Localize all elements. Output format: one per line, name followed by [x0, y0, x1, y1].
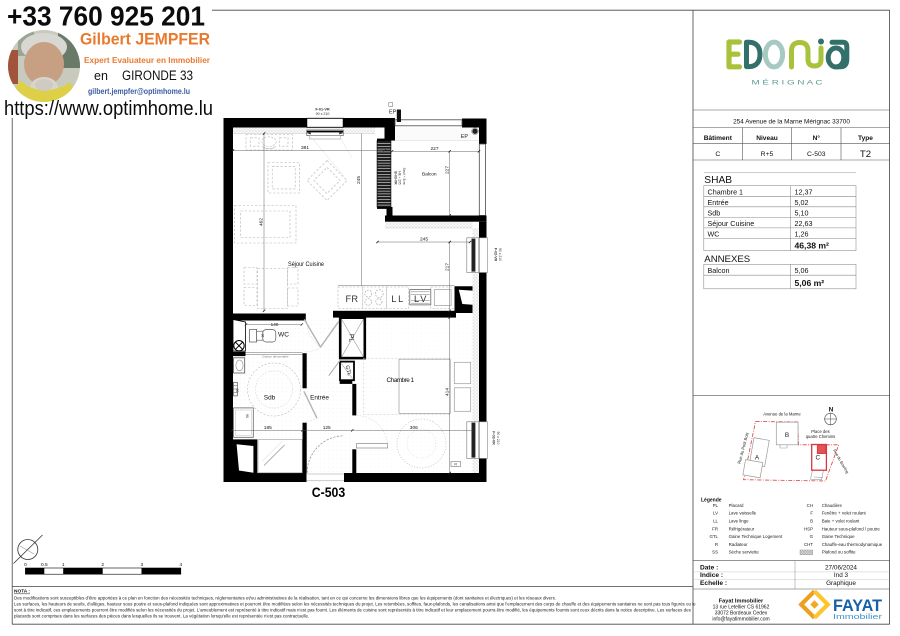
svg-text:F: F: [810, 511, 813, 516]
svg-text:quatre Chemins: quatre Chemins: [806, 434, 836, 439]
svg-text:Sdb: Sdb: [264, 395, 276, 402]
svg-text:1: 1: [62, 562, 65, 568]
svg-text:Séjour Cuisine: Séjour Cuisine: [708, 219, 755, 228]
svg-text:Echelle :: Echelle :: [700, 580, 727, 587]
svg-text:Type: Type: [858, 135, 873, 142]
svg-text:ANNEXES: ANNEXES: [704, 254, 750, 265]
svg-text:WC: WC: [278, 332, 289, 339]
svg-text:90 x 210: 90 x 210: [496, 431, 500, 444]
svg-text:R+5: R+5: [761, 151, 774, 158]
svg-text:M É R I G N A C: M É R I G N A C: [752, 80, 824, 87]
svg-text:en: en: [94, 69, 108, 83]
svg-text:5,02: 5,02: [795, 198, 809, 207]
svg-text:PL: PL: [713, 503, 719, 508]
svg-text:placards sont comprises dans l: placards sont comprises dans les surface…: [14, 613, 309, 618]
svg-text:B: B: [810, 519, 813, 524]
svg-text:Hauteur sous-plafond / poutre: Hauteur sous-plafond / poutre: [822, 526, 881, 531]
svg-text:5,06: 5,06: [795, 266, 809, 275]
svg-text:90 x 210: 90 x 210: [316, 112, 330, 116]
svg-text:CHT: CHT: [804, 542, 813, 547]
svg-text:NOTA :: NOTA :: [14, 589, 30, 595]
svg-text:3: 3: [140, 562, 143, 568]
svg-text:Fenêtre + volet roulant: Fenêtre + volet roulant: [822, 511, 867, 516]
svg-text:Avenue de la Marne: Avenue de la Marne: [763, 411, 801, 416]
svg-text:46,38 m²: 46,38 m²: [795, 240, 830, 250]
svg-text:Cloison démontable: Cloison démontable: [262, 355, 289, 359]
svg-text:C: C: [715, 151, 720, 158]
svg-text:2: 2: [101, 562, 104, 568]
svg-text:414: 414: [444, 388, 450, 396]
svg-text:CH: CH: [807, 503, 813, 508]
svg-text:245: 245: [356, 176, 362, 184]
svg-text:0: 0: [24, 562, 27, 568]
svg-text:462: 462: [259, 218, 265, 226]
svg-text:12,37: 12,37: [795, 187, 813, 196]
svg-text:Gilbert JEMPFER: Gilbert JEMPFER: [80, 30, 210, 48]
svg-text:+33 760 925 201: +33 760 925 201: [7, 1, 205, 32]
svg-text:5,10: 5,10: [795, 208, 809, 217]
svg-text:T2: T2: [860, 149, 871, 160]
svg-text:FR: FR: [712, 526, 718, 531]
svg-text:GIRONDE 33: GIRONDE 33: [122, 68, 193, 83]
svg-text:LV: LV: [713, 511, 718, 516]
svg-text:https://www.optimhome.lu: https://www.optimhome.lu: [4, 98, 213, 120]
svg-text:27/06/2024: 27/06/2024: [825, 564, 857, 571]
svg-text:Expert Evaluateur en Immobilie: Expert Evaluateur en Immobilier: [84, 55, 211, 65]
svg-text:Gaine Technique Logement: Gaine Technique Logement: [729, 534, 783, 539]
svg-text:Gaine Technique: Gaine Technique: [822, 534, 855, 539]
svg-text:Niveau: Niveau: [756, 135, 778, 142]
svg-text:Baie + volet roulant: Baie + volet roulant: [822, 519, 860, 524]
svg-text:Légende: Légende: [701, 497, 722, 503]
svg-text:LL: LL: [391, 294, 403, 304]
svg-text:PL: PL: [348, 334, 355, 342]
svg-text:245: 245: [420, 237, 428, 243]
svg-text:Entrée: Entrée: [708, 198, 729, 207]
svg-text:0.5: 0.5: [41, 562, 48, 568]
svg-text:86: 86: [261, 334, 265, 338]
svg-text:Radiateur: Radiateur: [729, 542, 749, 547]
svg-text:F-02-VR: F-02-VR: [494, 248, 498, 262]
svg-text:LV: LV: [414, 294, 427, 304]
svg-text:Sdb: Sdb: [708, 208, 721, 217]
svg-text:Date :: Date :: [700, 565, 718, 572]
svg-text:Des modifications sont suscept: Des modifications sont susceptibles d'êt…: [14, 595, 556, 600]
svg-text:Bâtiment: Bâtiment: [704, 135, 733, 142]
svg-text:R: R: [454, 463, 457, 467]
svg-text:185: 185: [264, 425, 272, 431]
svg-text:WC: WC: [708, 229, 720, 238]
svg-text:Fayat Immobilier: Fayat Immobilier: [719, 598, 764, 604]
svg-text:Chambre 1: Chambre 1: [708, 187, 744, 196]
svg-text:90: 90: [235, 389, 239, 393]
svg-text:N°: N°: [813, 134, 821, 142]
svg-text:C: C: [815, 455, 820, 462]
svg-text:Lave linge: Lave linge: [729, 519, 750, 524]
svg-text:Plafond ou soffite: Plafond ou soffite: [822, 550, 856, 555]
svg-text:306: 306: [410, 425, 418, 431]
svg-text:HE + 205: HE + 205: [398, 171, 402, 185]
svg-text:Immobilier: Immobilier: [833, 612, 883, 621]
svg-text:FR: FR: [346, 294, 359, 304]
svg-text:Les surfaces, les hauteurs de: Les surfaces, les hauteurs de seuils, d'…: [14, 601, 696, 606]
svg-text:LL: LL: [713, 519, 718, 524]
svg-text:1,26: 1,26: [795, 229, 809, 238]
svg-text:Réfrigérateur: Réfrigérateur: [729, 526, 755, 531]
svg-text:Chauffe-eau thermodynamique: Chauffe-eau thermodynamique: [822, 542, 883, 547]
svg-text:Ind 3: Ind 3: [834, 572, 849, 579]
svg-text:C-503: C-503: [312, 485, 346, 500]
svg-text:227: 227: [444, 166, 450, 174]
svg-text:HSP: HSP: [804, 526, 813, 531]
svg-text:381: 381: [301, 145, 309, 151]
svg-text:90 x 210: 90 x 210: [498, 248, 502, 261]
svg-text:22,63: 22,63: [795, 219, 813, 228]
svg-text:SHAB: SHAB: [704, 175, 732, 186]
svg-text:C-503: C-503: [807, 151, 826, 158]
svg-text:254 Avenue de la Marne Mérign: 254 Avenue de la Marne Mérignac 33700: [733, 119, 850, 126]
svg-text:5,06 m²: 5,06 m²: [795, 278, 825, 288]
svg-text:A: A: [755, 455, 760, 462]
svg-text:R: R: [715, 542, 718, 547]
svg-text:gilbert.jempfer@optimhome.lu: gilbert.jempfer@optimhome.lu: [88, 87, 190, 96]
svg-text:Indice :: Indice :: [700, 572, 723, 579]
svg-text:F-01-VR: F-01-VR: [315, 107, 330, 111]
svg-text:SS: SS: [712, 550, 718, 555]
svg-text:Balcon: Balcon: [422, 172, 437, 178]
svg-text:Chaudière: Chaudière: [822, 503, 843, 508]
svg-text:Balcon: Balcon: [708, 266, 730, 275]
svg-text:4: 4: [179, 562, 182, 568]
svg-text:B-03-VR: B-03-VR: [394, 171, 398, 185]
svg-text:Sèche serviette: Sèche serviette: [729, 550, 760, 555]
svg-text:Seuil + 3cm: Seuil + 3cm: [402, 168, 406, 185]
svg-text:Chambre 1: Chambre 1: [387, 377, 415, 384]
svg-text:Lave vaisselle: Lave vaisselle: [729, 511, 757, 516]
svg-text:EP: EP: [461, 134, 469, 140]
svg-text:B: B: [785, 432, 789, 439]
svg-text:125: 125: [323, 425, 331, 431]
svg-text:Entrée: Entrée: [310, 395, 329, 402]
svg-text:F-03-VR: F-03-VR: [492, 431, 496, 445]
svg-text:sont à titre indicatif, ces em: sont à titre indicatif, ces emplacements…: [14, 607, 692, 612]
svg-text:Séjour Cuisine: Séjour Cuisine: [288, 261, 324, 268]
svg-text:GTL: GTL: [709, 534, 718, 539]
svg-text:info@fayatimmobilier.com: info@fayatimmobilier.com: [712, 616, 769, 622]
svg-text:Placard: Placard: [729, 503, 744, 508]
svg-text:N: N: [829, 407, 834, 414]
svg-text:217: 217: [444, 263, 450, 271]
svg-text:90: 90: [245, 414, 249, 418]
svg-text:G: G: [810, 534, 814, 539]
svg-text:227: 227: [430, 146, 438, 152]
svg-text:EP: EP: [389, 110, 397, 116]
svg-text:140: 140: [271, 322, 279, 327]
svg-text:Graphique: Graphique: [826, 580, 856, 587]
